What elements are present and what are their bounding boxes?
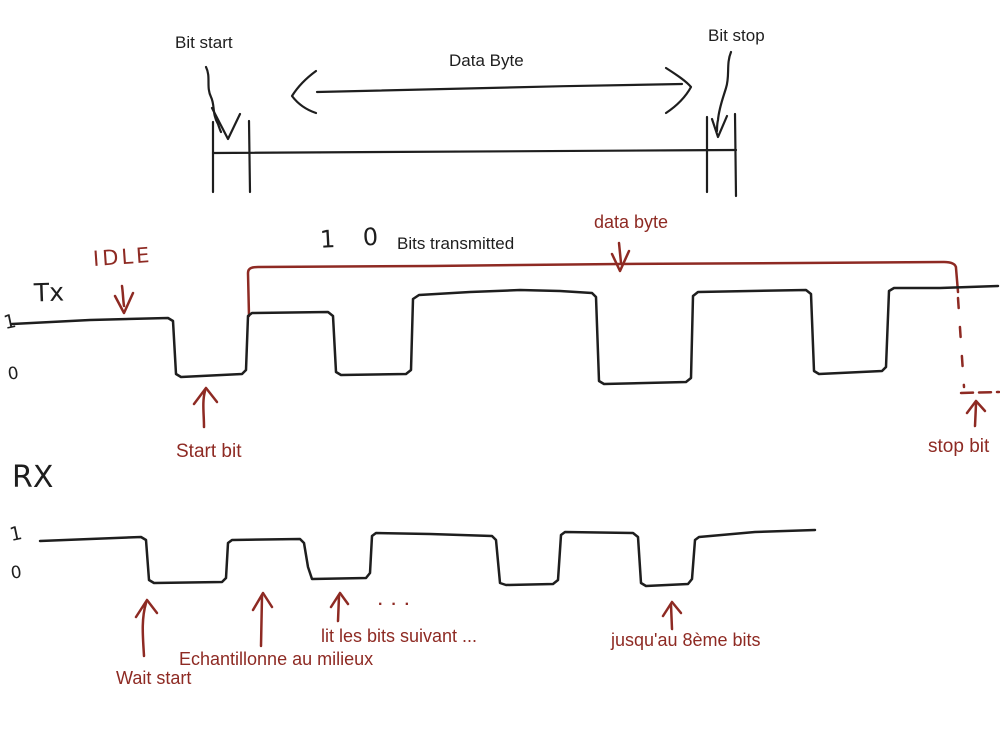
drawing-canvas: Bit start Data Byte Bit stop Bits transm… bbox=[0, 0, 1000, 750]
rx-waveform bbox=[40, 530, 815, 586]
data-byte-bracket-dashed-vertical bbox=[958, 298, 964, 387]
wait-start-arrow-shaft bbox=[143, 603, 146, 656]
sample-middle-label: Echantillonne au milieux bbox=[179, 649, 373, 670]
data-byte-annotation-label: data byte bbox=[594, 212, 668, 233]
wait-start-arrow-icon bbox=[136, 600, 157, 656]
read-next-arrow-shaft bbox=[338, 596, 339, 621]
bit-start-arrow-head bbox=[212, 108, 240, 139]
diagram-strokes bbox=[0, 0, 1000, 750]
bit-stop-arrow-shaft bbox=[717, 52, 731, 131]
stop-bit-arrow-shaft bbox=[975, 404, 976, 426]
until-8th-label: jusqu'au 8ème bits bbox=[611, 630, 761, 651]
read-next-arrow-icon bbox=[331, 593, 348, 621]
idle-label: IDLE bbox=[92, 243, 153, 271]
idle-arrow-icon bbox=[115, 286, 133, 313]
span-arrow-right-head bbox=[666, 68, 691, 113]
data-byte-span-label: Data Byte bbox=[449, 51, 524, 71]
data-byte-arrow-icon bbox=[612, 243, 629, 271]
data-byte-bracket-dashed-horizontal bbox=[961, 392, 999, 393]
wait-start-label: Wait start bbox=[116, 668, 191, 689]
ellipsis-dots: . . . bbox=[378, 592, 409, 610]
data-byte-span-arrow-icon bbox=[292, 68, 691, 113]
start-bit-arrow-icon bbox=[194, 388, 217, 427]
idle-arrow-shaft bbox=[122, 286, 124, 306]
until-8th-arrow-shaft bbox=[671, 605, 672, 629]
bit-stop-arrow-icon bbox=[712, 52, 731, 137]
bits-count-handwritten: 1 0 bbox=[319, 223, 389, 254]
sample-middle-arrow-icon bbox=[253, 593, 272, 646]
tx-line-label: Tx bbox=[34, 278, 65, 308]
stop-bit-label: stop bit bbox=[928, 436, 989, 458]
data-byte-arrow-shaft bbox=[619, 243, 621, 263]
sample-middle-arrow-shaft bbox=[261, 596, 262, 646]
stop-bit-arrow-icon bbox=[967, 401, 985, 426]
bit-start-arrow-icon bbox=[206, 67, 240, 139]
timeline-line bbox=[213, 150, 736, 153]
timeline-tick-left-2 bbox=[249, 121, 250, 192]
start-bit-arrow-shaft bbox=[203, 391, 205, 427]
span-arrow-left-head bbox=[292, 71, 316, 113]
span-arrow-line bbox=[317, 84, 682, 92]
bit-stop-arrow-head bbox=[712, 116, 727, 137]
timeline bbox=[213, 114, 736, 196]
read-next-label: lit les bits suivant ... bbox=[321, 626, 477, 647]
rx-line-label: RX bbox=[12, 461, 53, 496]
bit-start-label: Bit start bbox=[175, 33, 233, 53]
data-byte-bracket-solid bbox=[248, 262, 958, 316]
start-bit-label: Start bit bbox=[176, 441, 241, 463]
tx-waveform bbox=[12, 286, 998, 384]
bit-stop-label: Bit stop bbox=[708, 26, 765, 46]
bits-transmitted-label: Bits transmitted bbox=[397, 234, 514, 254]
timeline-tick-right-2 bbox=[735, 114, 736, 196]
until-8th-arrow-icon bbox=[663, 602, 681, 629]
